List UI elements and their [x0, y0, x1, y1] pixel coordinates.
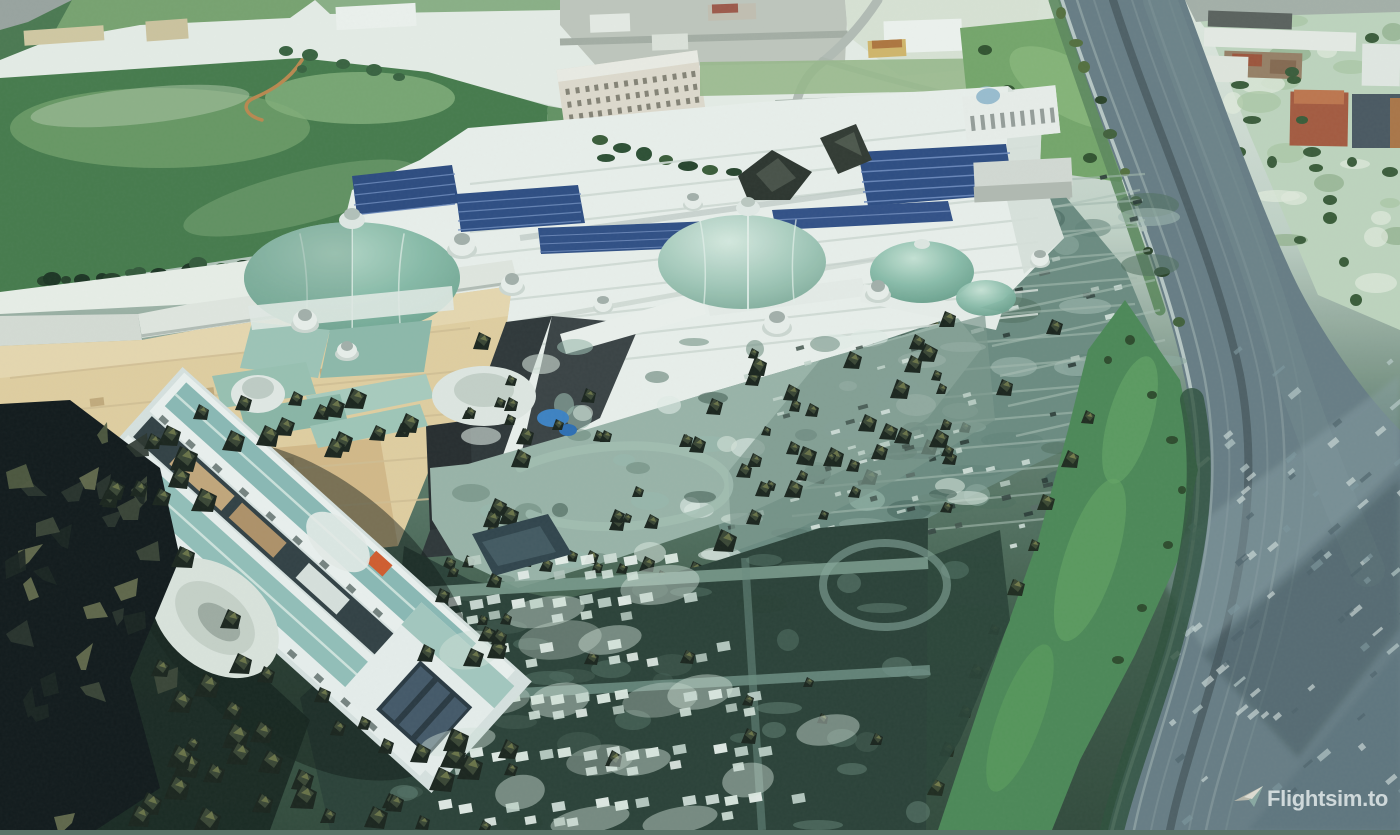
svg-text:Flightsim.to: Flightsim.to — [1267, 786, 1388, 811]
